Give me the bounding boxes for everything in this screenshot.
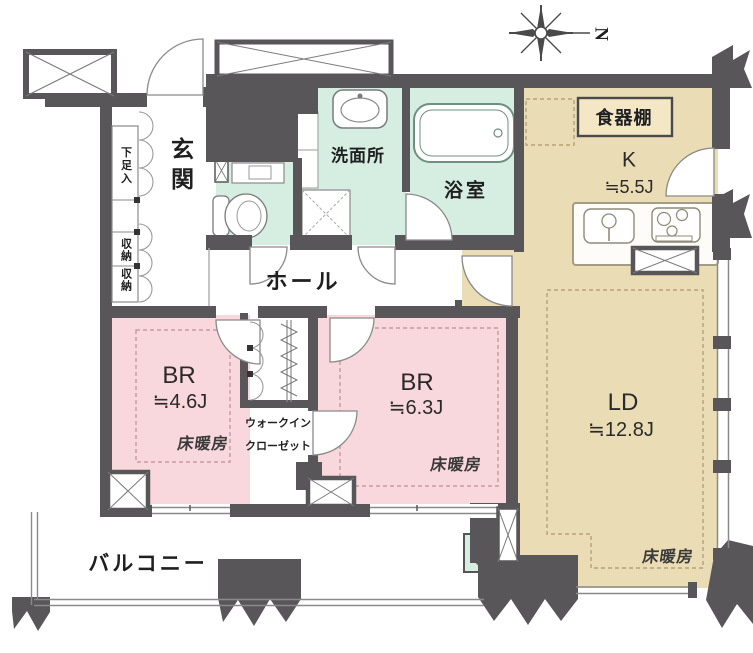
living-dining-label: LD bbox=[608, 391, 639, 415]
bedroom2-size: ≒6.3J bbox=[389, 398, 444, 418]
wic-label-line2: クローゼット bbox=[245, 442, 311, 453]
ld-window-cap-bottom bbox=[713, 548, 731, 560]
bedroom1-floor-heating-label: 床暖房 bbox=[176, 437, 229, 453]
balcony-label: バルコニー bbox=[88, 554, 208, 575]
wall-mass-upper bbox=[206, 74, 318, 114]
cabinet-tick-1 bbox=[134, 197, 140, 203]
kitchen-size: ≒5.5J bbox=[604, 178, 653, 196]
compass-hub bbox=[535, 27, 547, 39]
stove-icon bbox=[652, 208, 700, 242]
floor-plan: 玄関 下足入 収納 収納 洗面所 浴室 ホール 食器棚 K ≒5.5J BR ≒… bbox=[0, 0, 753, 653]
top-closet-box bbox=[217, 42, 391, 76]
bathtub-icon bbox=[414, 104, 514, 162]
wall-wic-east-upper bbox=[308, 313, 318, 411]
ld-window-mullion-2 bbox=[713, 398, 731, 411]
hall-label: ホール bbox=[265, 271, 340, 293]
wall-hall-bottom-1 bbox=[100, 306, 216, 318]
wall-left-exterior bbox=[100, 93, 112, 517]
ld-bottom-window-cap bbox=[688, 582, 697, 598]
wall-bath-kitchen bbox=[514, 74, 524, 252]
wall-break-ld-corner bbox=[478, 555, 578, 625]
bedroom2-floor-heating-label: 床暖房 bbox=[429, 458, 482, 474]
bedroom1-window-gap bbox=[152, 504, 230, 518]
ld-window-mullion-1 bbox=[713, 336, 731, 349]
pipe-space-balcony bbox=[498, 508, 518, 562]
wall-toilet-washroom bbox=[293, 158, 302, 246]
cabinet-tick-3 bbox=[134, 263, 140, 269]
bedroom2-label: BR bbox=[400, 371, 433, 395]
storage-lower-label: 収納 bbox=[120, 268, 131, 292]
entrance-label: 玄関 bbox=[169, 137, 192, 197]
wall-hall-bottom-3 bbox=[375, 306, 520, 318]
elevator-shaft-box bbox=[26, 52, 114, 96]
pipe-space-kitchen bbox=[633, 248, 697, 273]
cupboard-label: 食器棚 bbox=[596, 109, 653, 127]
pipe-space-bedroom1 bbox=[108, 472, 148, 510]
bedroom2-window-gap bbox=[370, 504, 498, 518]
washbasin-faucet bbox=[358, 94, 363, 99]
wic-tick-2 bbox=[247, 371, 253, 377]
wall-washroom-bath bbox=[402, 74, 410, 192]
wall-mass-lower bbox=[206, 112, 298, 162]
bedroom1-label: BR bbox=[162, 364, 195, 388]
wic-tick-1 bbox=[247, 345, 253, 351]
wall-hall-top-2 bbox=[290, 235, 352, 250]
storage-upper-label: 収納 bbox=[120, 238, 131, 262]
wall-hall-top-1 bbox=[206, 235, 252, 250]
shoe-cabinet-label: 下足入 bbox=[120, 147, 131, 186]
washroom-label: 洗面所 bbox=[331, 148, 385, 165]
cabinet-tick-2 bbox=[134, 229, 140, 235]
kitchen-label: K bbox=[622, 150, 636, 171]
hall-ld-doorway-gap bbox=[454, 250, 462, 300]
ld-window-cap-top bbox=[713, 248, 731, 260]
pipe-space-wic bbox=[308, 478, 354, 506]
compass-north-letter: N bbox=[592, 27, 611, 41]
bathroom-label: 浴室 bbox=[444, 182, 488, 201]
living-floor-heating-label: 床暖房 bbox=[641, 550, 694, 566]
ld-window-mullion-3 bbox=[713, 460, 731, 473]
wall-wic-divider bbox=[240, 400, 316, 408]
wic-label-line1: ウォークイン bbox=[245, 419, 311, 430]
living-dining-size: ≒12.8J bbox=[588, 420, 654, 440]
wall-bedroom2-living bbox=[506, 313, 518, 510]
bedroom1-size: ≒4.6J bbox=[153, 392, 208, 412]
